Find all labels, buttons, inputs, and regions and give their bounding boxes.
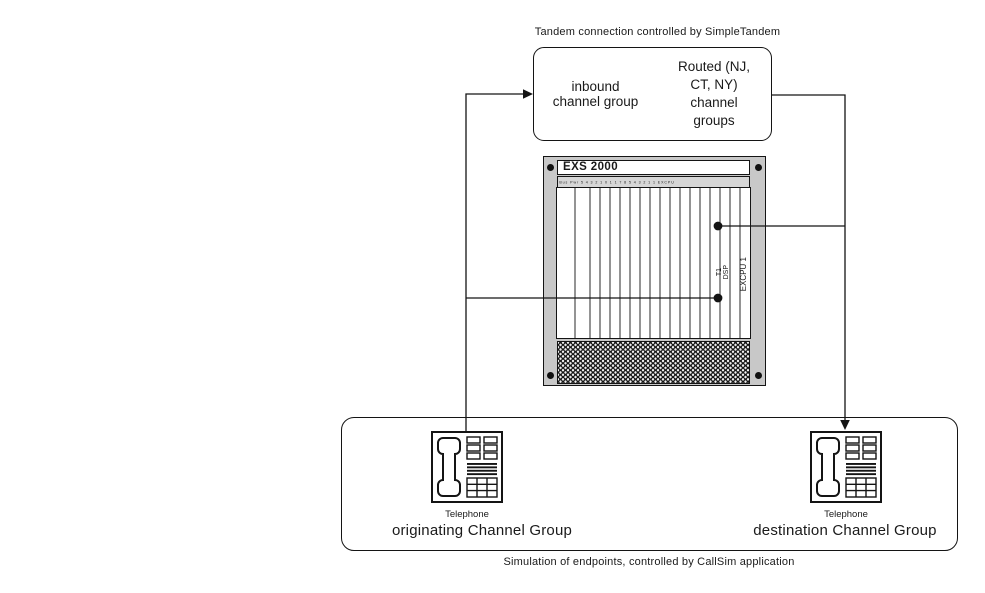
screw-icon	[755, 372, 762, 379]
endpoints-caption: Simulation of endpoints, controlled by C…	[459, 556, 839, 568]
t1-card-label: T1	[716, 268, 723, 276]
telephone-label: Telephone	[796, 509, 896, 520]
originating-to-inbound-line	[466, 94, 528, 431]
endpoints-box: Telephone Telephone originating Channel …	[341, 417, 958, 551]
dsp-card-label: DSP	[723, 265, 730, 279]
slot-numbers: Bus Pwr 5 4 3 2 1 0 1 1 7 8 5 4 3 2 1 1 …	[558, 178, 748, 187]
exs2000-chassis: EXS 2000 Bus Pwr 5 4 3 2 1 0 1 1 7 8 5 4…	[543, 156, 766, 386]
arrowhead-right-icon	[523, 89, 533, 99]
tandem-caption: Tandem connection controlled by SimpleTa…	[470, 26, 845, 38]
routed-channel-groups-label: Routed (NJ, CT, NY) channel groups	[657, 58, 771, 130]
excpu-card-label: EXCPU 1	[740, 257, 748, 291]
screw-icon	[547, 372, 554, 379]
routed-to-destination-line	[771, 95, 845, 424]
originating-group-label: originating Channel Group	[362, 522, 602, 539]
card-cage: T1 DSP EXCPU 1	[556, 187, 751, 339]
chassis-title: EXS 2000	[557, 160, 750, 175]
tandem-box: inbound channel group Routed (NJ, CT, NY…	[533, 47, 772, 141]
screw-icon	[755, 164, 762, 171]
screw-icon	[547, 164, 554, 171]
inbound-channel-group-label: inbound channel group	[534, 79, 657, 109]
telephone-icon	[431, 431, 503, 503]
telephone-icon	[810, 431, 882, 503]
diagram-canvas: Tandem connection controlled by SimpleTa…	[0, 0, 985, 593]
telephone-label: Telephone	[417, 509, 517, 520]
card-slot-lines	[557, 188, 750, 338]
destination-group-label: destination Channel Group	[725, 522, 965, 539]
vent-grille	[557, 341, 750, 384]
